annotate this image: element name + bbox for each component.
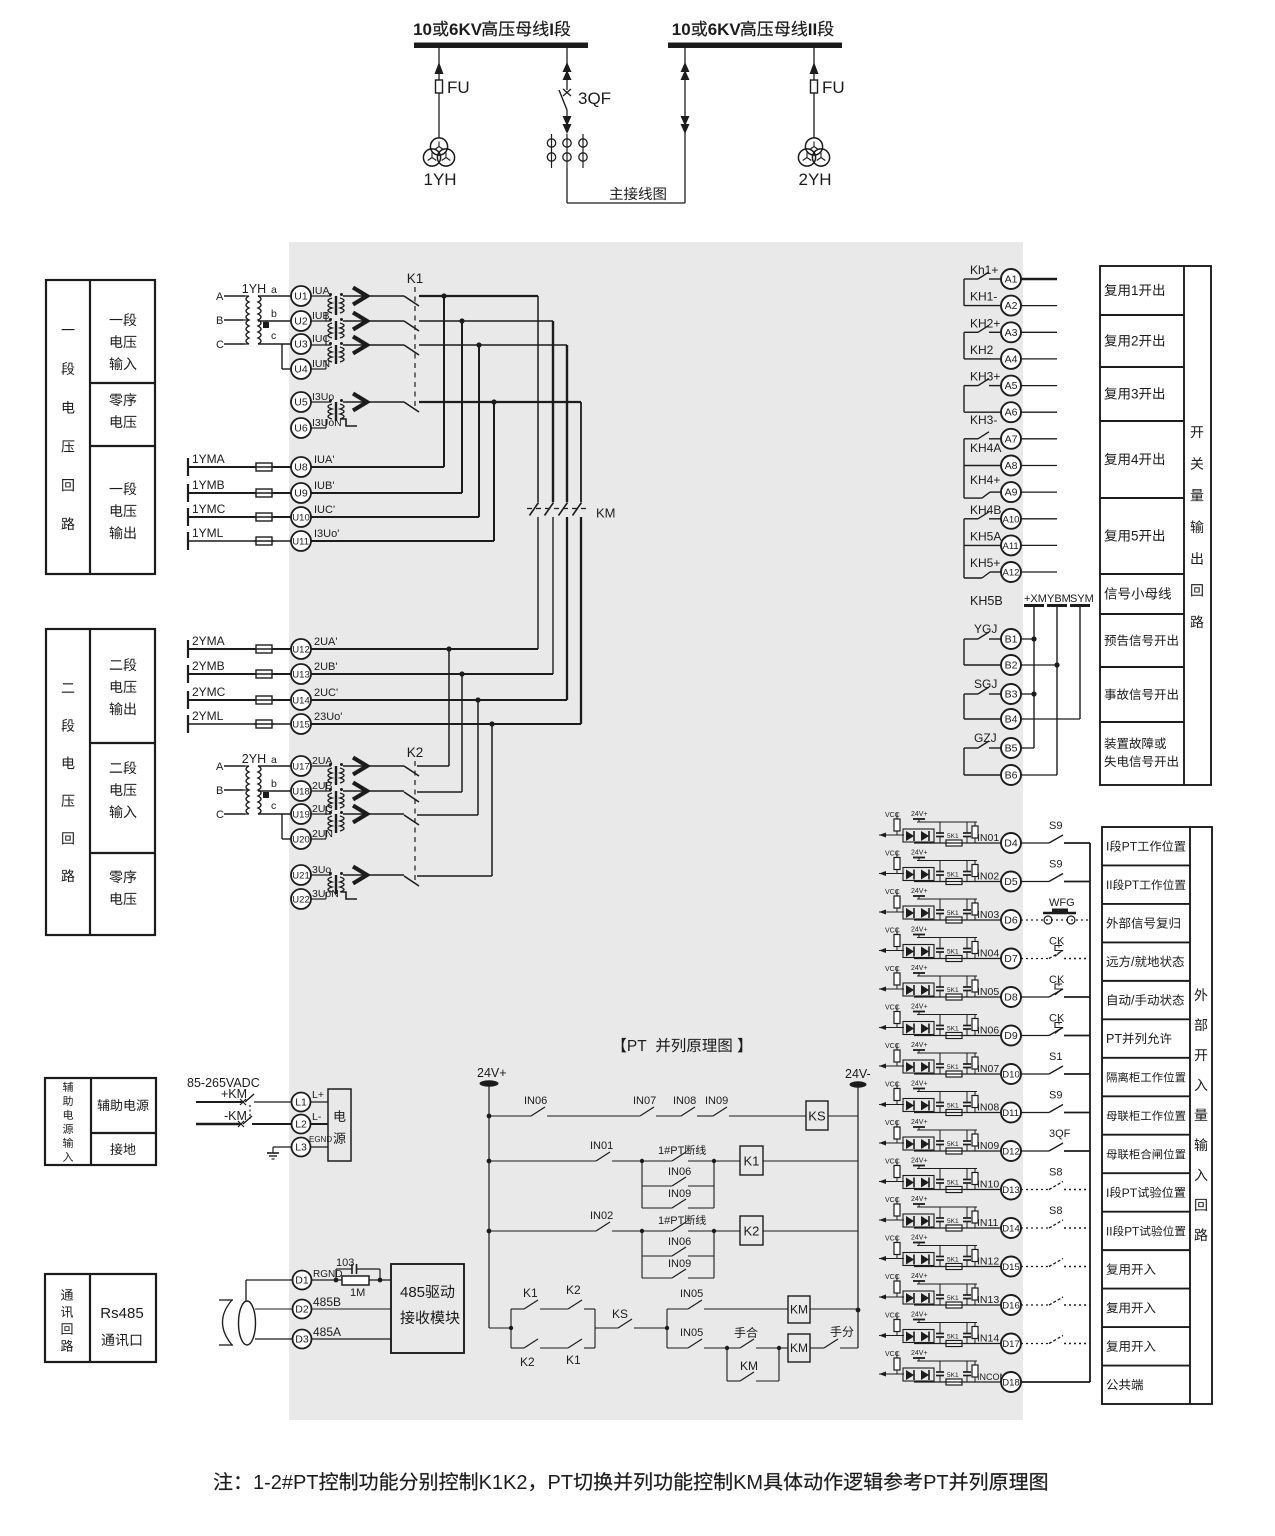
svg-text:SYM: SYM	[1070, 593, 1094, 605]
svg-text:24V+: 24V+	[911, 1235, 928, 1242]
svg-text:5K1: 5K1	[947, 833, 959, 840]
svg-text:IUA': IUA'	[314, 454, 334, 466]
svg-text:B2: B2	[1005, 660, 1018, 672]
svg-text:U13: U13	[292, 670, 309, 681]
svg-text:A11: A11	[1003, 541, 1019, 552]
svg-text:IN10: IN10	[977, 1179, 999, 1191]
svg-text:D12: D12	[1002, 1147, 1019, 1158]
svg-text:IN01: IN01	[977, 832, 999, 844]
svg-text:VCC: VCC	[885, 889, 900, 896]
svg-text:U11: U11	[292, 537, 309, 548]
svg-text:1#PT: 1#PT	[658, 1145, 685, 1157]
svg-text:24V+: 24V+	[911, 811, 928, 818]
svg-text:IUC': IUC'	[314, 504, 335, 516]
svg-text:3Uo: 3Uo	[312, 864, 331, 876]
svg-text:KH3-: KH3-	[970, 413, 997, 427]
svg-text:2YMA: 2YMA	[192, 634, 225, 648]
svg-text:U15: U15	[292, 720, 309, 731]
svg-text:D7: D7	[1004, 953, 1018, 965]
svg-text:D11: D11	[1002, 1108, 1019, 1119]
svg-text:IUB': IUB'	[314, 480, 334, 492]
svg-text:PT: PT	[923, 1472, 949, 1494]
svg-text:5: 5	[1131, 529, 1139, 544]
svg-text:S8: S8	[1049, 1205, 1062, 1217]
svg-text:24V+: 24V+	[911, 1004, 928, 1011]
svg-text:1YML: 1YML	[192, 526, 224, 540]
svg-text:EGND: EGND	[309, 1135, 332, 1144]
svg-text:A6: A6	[1005, 407, 1018, 419]
svg-text:S9: S9	[1049, 1090, 1062, 1102]
svg-text:IN09: IN09	[668, 1258, 691, 1270]
svg-text:IN09: IN09	[705, 1095, 728, 1107]
svg-text:VCC: VCC	[885, 1005, 900, 1012]
svg-text:L1: L1	[295, 1097, 307, 1109]
svg-text:U3: U3	[294, 339, 308, 351]
svg-text:A1: A1	[1005, 274, 1018, 286]
svg-text:K2: K2	[407, 745, 424, 760]
svg-text:IN06: IN06	[977, 1025, 999, 1037]
svg-text:D2: D2	[295, 1304, 309, 1316]
svg-text:K1: K1	[744, 1154, 760, 1169]
svg-text:5K1: 5K1	[947, 872, 959, 879]
svg-text:1-2#PT: 1-2#PT	[253, 1472, 319, 1494]
svg-text:PT: PT	[1106, 1032, 1122, 1046]
svg-text:K1: K1	[566, 1353, 581, 1367]
svg-text:RGND: RGND	[313, 1269, 342, 1280]
svg-text:D18: D18	[1002, 1378, 1019, 1389]
svg-text:B4: B4	[1005, 714, 1018, 726]
svg-text:KM: KM	[790, 1303, 808, 1317]
svg-text:K1: K1	[407, 271, 424, 286]
svg-text:5K1: 5K1	[947, 1141, 959, 1148]
svg-text:KH5+: KH5+	[970, 556, 1000, 570]
svg-text:c: c	[271, 800, 276, 812]
svg-text:4: 4	[1131, 452, 1139, 467]
svg-text:3QF: 3QF	[578, 89, 611, 108]
svg-text:2YMC: 2YMC	[192, 685, 226, 699]
svg-text:SGJ: SGJ	[974, 677, 997, 691]
svg-text:24V+: 24V+	[911, 1312, 928, 1319]
svg-text:D1: D1	[295, 1275, 309, 1287]
svg-text:5K1: 5K1	[947, 1180, 959, 1187]
svg-text:A4: A4	[1005, 353, 1018, 365]
svg-text:YGJ: YGJ	[974, 622, 997, 636]
svg-text:VCC: VCC	[885, 1351, 900, 1358]
svg-text:KM: KM	[596, 506, 616, 521]
svg-text:3QF: 3QF	[1049, 1128, 1071, 1140]
svg-text:K1: K1	[523, 1286, 538, 1300]
svg-text:PT: PT	[1122, 1186, 1138, 1200]
svg-text:VCC: VCC	[885, 1043, 900, 1050]
svg-text:I3Uo': I3Uo'	[314, 528, 339, 540]
svg-text:5K1: 5K1	[947, 1218, 959, 1225]
svg-text:KS: KS	[808, 1109, 826, 1124]
svg-text:1YH: 1YH	[424, 170, 457, 189]
svg-text:A10: A10	[1003, 514, 1020, 525]
svg-text:24V+: 24V+	[911, 888, 928, 895]
svg-text:Rs485: Rs485	[100, 1305, 143, 1322]
svg-text:KH3+: KH3+	[970, 370, 1000, 384]
svg-text:VCC: VCC	[885, 851, 900, 858]
svg-text:24V+: 24V+	[911, 1158, 928, 1165]
svg-text:U1: U1	[294, 291, 308, 303]
svg-text:5K1: 5K1	[947, 1295, 959, 1302]
svg-text:U4: U4	[294, 364, 308, 376]
svg-text:A5: A5	[1005, 380, 1018, 392]
svg-text:I: I	[1106, 840, 1109, 854]
svg-text:24V+: 24V+	[911, 1196, 928, 1203]
svg-text:a: a	[271, 754, 277, 766]
svg-text:5K1: 5K1	[947, 1334, 959, 1341]
svg-text:D8: D8	[1004, 992, 1018, 1004]
svg-text:IN13: IN13	[977, 1294, 999, 1306]
svg-text:5K1: 5K1	[947, 1103, 959, 1110]
svg-text:+KM: +KM	[221, 1087, 247, 1101]
svg-text:II: II	[1106, 879, 1113, 892]
svg-text:KH2: KH2	[970, 343, 994, 357]
svg-text:2YML: 2YML	[192, 709, 224, 723]
svg-text:KH5A: KH5A	[970, 529, 1001, 543]
svg-text:K2: K2	[744, 1224, 760, 1239]
svg-text:KH1-: KH1-	[970, 290, 997, 304]
svg-text:U22: U22	[292, 895, 309, 906]
svg-text:PT: PT	[627, 1038, 647, 1055]
svg-text:1#PT: 1#PT	[658, 1215, 685, 1227]
svg-text:K2: K2	[520, 1355, 535, 1369]
svg-text:24V+: 24V+	[911, 1119, 928, 1126]
svg-text:D10: D10	[1002, 1070, 1019, 1081]
svg-text:D17: D17	[1002, 1339, 1019, 1350]
svg-text:II: II	[808, 20, 817, 39]
svg-text:5K1: 5K1	[947, 1372, 959, 1379]
svg-text:24V+: 24V+	[477, 1066, 507, 1080]
svg-text:I3UoN: I3UoN	[312, 417, 342, 429]
svg-text:U9: U9	[294, 488, 308, 500]
svg-text:10: 10	[672, 20, 691, 39]
svg-text:1YMC: 1YMC	[192, 502, 226, 516]
svg-text:IN07: IN07	[977, 1063, 999, 1075]
svg-text:YBM: YBM	[1047, 593, 1071, 605]
svg-text:/: /	[1131, 994, 1135, 1008]
svg-text:IN08: IN08	[673, 1095, 696, 1107]
svg-text:KH4A: KH4A	[970, 441, 1001, 455]
svg-text:IN12: IN12	[977, 1256, 999, 1268]
svg-text:KH5B: KH5B	[970, 594, 1003, 608]
svg-text:U8: U8	[294, 462, 308, 474]
svg-text:B5: B5	[1005, 743, 1018, 755]
svg-text:U18: U18	[292, 787, 309, 798]
svg-text:IN08: IN08	[977, 1102, 999, 1114]
svg-text:D5: D5	[1004, 876, 1018, 888]
svg-text:1YMA: 1YMA	[192, 452, 225, 466]
svg-text:A8: A8	[1005, 460, 1018, 472]
svg-text:A12: A12	[1003, 568, 1020, 579]
svg-text:U10: U10	[292, 513, 309, 524]
svg-text:I: I	[549, 20, 554, 39]
svg-text:VCC: VCC	[885, 812, 900, 819]
svg-text:485: 485	[400, 1284, 425, 1301]
svg-text:PT: PT	[1122, 840, 1138, 854]
svg-text:U2: U2	[294, 316, 308, 328]
svg-text:VCC: VCC	[885, 1274, 900, 1281]
svg-text:IN03: IN03	[977, 909, 999, 921]
svg-text:K2: K2	[566, 1283, 581, 1297]
svg-text:a: a	[271, 284, 277, 296]
svg-text:IN06: IN06	[524, 1095, 547, 1107]
svg-text:2YH: 2YH	[242, 752, 266, 766]
svg-text:S8: S8	[1049, 1167, 1062, 1179]
svg-text:A2: A2	[1005, 300, 1018, 312]
svg-text:IN11: IN11	[977, 1217, 999, 1229]
svg-text:IN09: IN09	[977, 1140, 999, 1152]
svg-text:6KV: 6KV	[449, 20, 483, 39]
svg-text:D4: D4	[1004, 838, 1018, 850]
svg-text:5K1: 5K1	[947, 1257, 959, 1264]
svg-text:24V+: 24V+	[911, 1350, 928, 1357]
svg-text:U5: U5	[294, 397, 308, 409]
svg-text:b: b	[271, 778, 277, 790]
svg-text:PT: PT	[548, 1472, 574, 1494]
svg-text:23Uo': 23Uo'	[314, 711, 342, 723]
svg-text:D15: D15	[1002, 1262, 1019, 1273]
svg-text:Kh1+: Kh1+	[970, 263, 998, 277]
svg-text:VCC: VCC	[885, 1236, 900, 1243]
svg-text:VCC: VCC	[885, 1082, 900, 1089]
svg-text:L+: L+	[312, 1089, 324, 1101]
svg-text:2YH: 2YH	[799, 170, 832, 189]
svg-text:VCC: VCC	[885, 1197, 900, 1204]
svg-text:D6: D6	[1004, 915, 1018, 927]
svg-text:IN05: IN05	[680, 1327, 703, 1339]
svg-text:10: 10	[413, 20, 432, 39]
svg-text:IUA: IUA	[312, 285, 330, 297]
svg-text:D16: D16	[1002, 1301, 1019, 1312]
svg-text:485B: 485B	[313, 1295, 341, 1309]
svg-text:S1: S1	[1049, 1051, 1062, 1063]
svg-text:B3: B3	[1005, 689, 1018, 701]
svg-text:VCC: VCC	[885, 1120, 900, 1127]
svg-text:A: A	[216, 761, 224, 773]
svg-text:IUB: IUB	[312, 310, 330, 322]
svg-text:24V+: 24V+	[911, 1081, 928, 1088]
svg-text:II: II	[1106, 1225, 1113, 1238]
svg-text:IN07: IN07	[633, 1095, 656, 1107]
svg-text:D14: D14	[1002, 1224, 1019, 1235]
svg-text:D3: D3	[295, 1334, 309, 1346]
svg-text:IN05: IN05	[680, 1288, 703, 1300]
svg-text:U14: U14	[292, 696, 309, 707]
svg-text:KH2+: KH2+	[970, 316, 1000, 330]
svg-text:U17: U17	[292, 762, 309, 773]
svg-text:IN02: IN02	[590, 1210, 613, 1222]
svg-text:B6: B6	[1005, 770, 1018, 782]
svg-text:5K1: 5K1	[947, 910, 959, 917]
svg-text:A3: A3	[1005, 327, 1018, 339]
svg-text:PT: PT	[1124, 879, 1139, 892]
svg-text:KH4B: KH4B	[970, 503, 1001, 517]
svg-text:VCC: VCC	[885, 1159, 900, 1166]
svg-text:1: 1	[1131, 283, 1139, 298]
svg-text:KH4+: KH4+	[970, 473, 1000, 487]
svg-text:IN04: IN04	[977, 948, 999, 960]
svg-text:U6: U6	[294, 423, 308, 435]
svg-text:A: A	[216, 291, 224, 303]
svg-text:GZJ: GZJ	[974, 731, 997, 745]
svg-text:2YMB: 2YMB	[192, 659, 225, 673]
svg-text:D13: D13	[1002, 1185, 1019, 1196]
svg-text:1YH: 1YH	[242, 282, 266, 296]
svg-text:C: C	[216, 809, 224, 821]
svg-text:c: c	[271, 330, 276, 342]
svg-text:K1K2: K1K2	[479, 1472, 528, 1494]
svg-text:S9: S9	[1049, 820, 1062, 832]
svg-text:L-: L-	[312, 1111, 322, 1123]
svg-text:U12: U12	[292, 645, 309, 656]
svg-text:2UC': 2UC'	[314, 687, 338, 699]
svg-text:24V+: 24V+	[911, 965, 928, 972]
svg-text:6KV: 6KV	[708, 20, 742, 39]
svg-text:IN02: IN02	[977, 871, 999, 883]
svg-text:24V-: 24V-	[845, 1067, 871, 1081]
svg-text:PT: PT	[1124, 1225, 1139, 1238]
svg-text:FU: FU	[447, 78, 470, 97]
svg-text:24V+: 24V+	[911, 850, 928, 857]
svg-text:S9: S9	[1049, 859, 1062, 871]
svg-text:5K1: 5K1	[947, 949, 959, 956]
svg-text:B: B	[216, 785, 223, 797]
svg-text:/: /	[1131, 955, 1135, 969]
svg-text:KM: KM	[790, 1341, 808, 1355]
svg-text:VCC: VCC	[885, 966, 900, 973]
svg-text:3: 3	[1131, 387, 1139, 402]
svg-text:2: 2	[1131, 334, 1139, 349]
svg-text:WFG: WFG	[1049, 897, 1075, 909]
svg-text:U20: U20	[292, 835, 309, 846]
svg-text:FU: FU	[822, 78, 845, 97]
svg-text:D9: D9	[1004, 1030, 1018, 1042]
svg-text:5K1: 5K1	[947, 1026, 959, 1033]
svg-text:KM: KM	[733, 1472, 763, 1494]
svg-text:U19: U19	[292, 810, 309, 821]
svg-text:B: B	[216, 315, 223, 327]
svg-text:IN09: IN09	[668, 1188, 691, 1200]
svg-text:5K1: 5K1	[947, 987, 959, 994]
svg-text:1M: 1M	[350, 1287, 365, 1299]
svg-text:VCC: VCC	[885, 928, 900, 935]
svg-text:IN14: IN14	[977, 1333, 999, 1345]
svg-text:2UA': 2UA'	[314, 636, 338, 648]
svg-text:B1: B1	[1005, 634, 1018, 646]
svg-text:L2: L2	[295, 1119, 307, 1131]
svg-text:VCC: VCC	[885, 1313, 900, 1320]
svg-text:IN05: IN05	[977, 986, 999, 998]
svg-text:IN06: IN06	[668, 1236, 691, 1248]
svg-text:A9: A9	[1005, 487, 1018, 499]
svg-text:485A: 485A	[313, 1325, 341, 1339]
svg-text:24V+: 24V+	[911, 927, 928, 934]
svg-text:C: C	[216, 339, 224, 351]
svg-text:b: b	[271, 308, 277, 320]
svg-text:24V+: 24V+	[911, 1273, 928, 1280]
svg-text:1YMB: 1YMB	[192, 478, 225, 492]
svg-text:KM: KM	[740, 1359, 758, 1373]
svg-text:A7: A7	[1005, 433, 1018, 445]
svg-text:KS: KS	[612, 1307, 628, 1321]
svg-text:+XM: +XM	[1024, 593, 1047, 605]
svg-text:L3: L3	[295, 1142, 307, 1154]
svg-text:I: I	[1106, 1186, 1109, 1200]
svg-text:U21: U21	[292, 871, 309, 882]
svg-text:24V+: 24V+	[911, 1042, 928, 1049]
svg-text:2UB': 2UB'	[314, 661, 338, 673]
svg-text:5K1: 5K1	[947, 1064, 959, 1071]
svg-text:IN06: IN06	[668, 1166, 691, 1178]
svg-text:IN01: IN01	[590, 1140, 613, 1152]
